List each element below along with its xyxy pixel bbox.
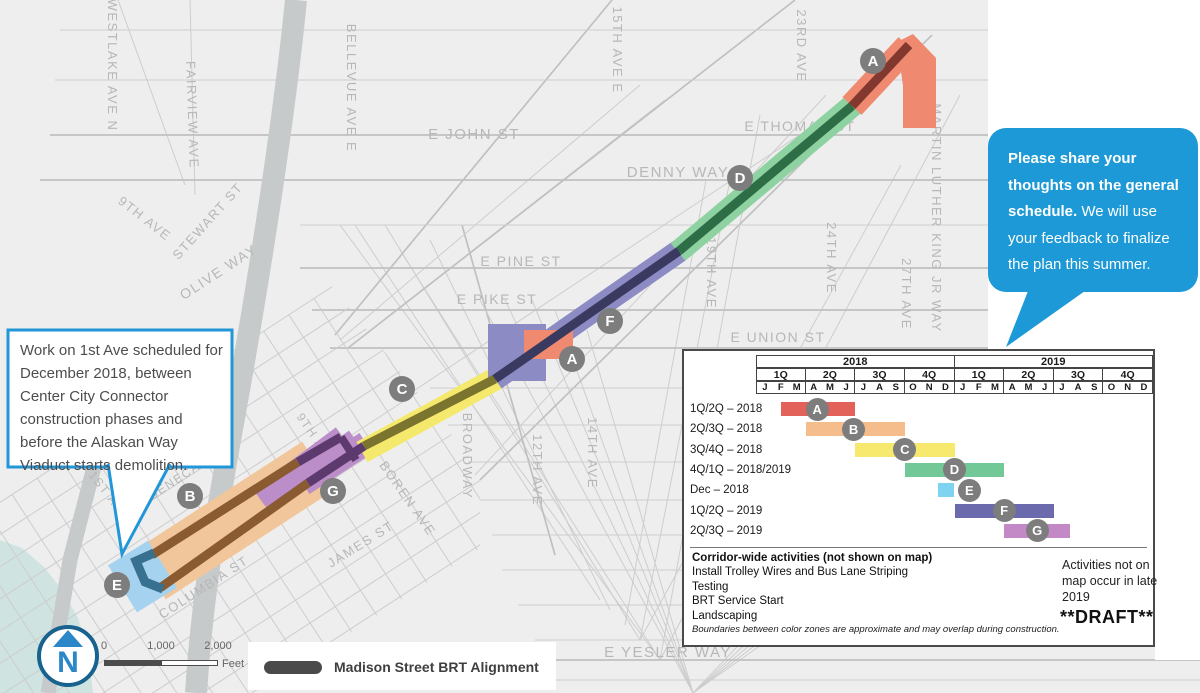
street-label: BROADWAY [460,413,475,499]
gantt-quarter-cell: 3Q [855,368,905,381]
gantt-year-cell: 2018 [756,355,955,368]
gantt-month-label: O [1103,382,1119,393]
street-label: MARTIN LUTHER KING JR WAY [929,103,944,332]
madison-brt-map-page: { "bubble": { "bold": "Please share your… [0,0,1200,693]
gantt-marker-b: B [842,418,865,441]
corridor-activity-item: Install Trolley Wires and Bus Lane Strip… [692,566,908,578]
gantt-month-cell: AMJ [1004,381,1054,394]
legend-box: Madison Street BRT Alignment [248,642,556,690]
gantt-month-label: A [871,382,887,393]
gantt-marker-a: A [806,398,829,421]
gantt-quarter-cell: 4Q [1103,368,1153,381]
street-label: 12TH AVE [530,434,545,506]
gantt-month-cell: JAS [855,381,905,394]
gantt-marker-e: E [958,479,981,502]
gantt-marker-d: D [943,458,966,481]
gantt-year-cell: 2019 [955,355,1154,368]
gantt-month-label: F [971,382,987,393]
street-label: E JOHN ST [428,126,520,143]
svg-text:B: B [185,488,196,505]
scale-bar: 0 1,000 2,000 Feet [100,640,270,680]
svg-text:A: A [567,351,578,368]
svg-text:F: F [605,313,614,330]
street-label: DENNY WAY [627,164,729,181]
gantt-month-label: N [1120,382,1136,393]
footnote: Boundaries between color zones are appro… [692,624,1060,635]
map-marker-a2: A [559,346,585,372]
street-label: 23RD AVE [794,9,809,82]
gantt-month-label: M [987,382,1003,393]
gantt-quarter-cell: 2Q [1004,368,1054,381]
gantt-marker-c: C [893,438,916,461]
street-label: 24TH AVE [824,222,839,294]
gantt-quarter-cell: 3Q [1054,368,1104,381]
gantt-row-label: Dec – 2018 [690,484,749,496]
street-label: 27TH AVE [899,258,914,330]
gantt-row-label: 2Q/3Q – 2019 [690,525,762,537]
scale-unit: Feet [222,658,244,670]
svg-text:G: G [327,483,339,500]
gantt-marker-g: G [1026,519,1049,542]
gantt-month-label: O [905,382,921,393]
map-marker-f: F [597,308,623,334]
panel-divider [690,547,1147,548]
draft-label: **DRAFT** [1060,607,1154,628]
gantt-quarter-cell: 2Q [806,368,856,381]
gantt-row-label: 1Q/2Q – 2018 [690,403,762,415]
speech-bubble-text: Please share your thoughts on the genera… [1008,146,1186,279]
gantt-quarter-cell: 1Q [955,368,1005,381]
scale-tick-1000: 1,000 [147,640,175,652]
gantt-row-label: 2Q/3Q – 2018 [690,423,762,435]
map-marker-a1: A [860,48,886,74]
gantt-marker-f: F [993,499,1016,522]
map-marker-e: E [104,572,130,598]
map-marker-c: C [389,376,415,402]
schedule-panel: Corridor-wide activities (not shown on m… [682,349,1155,647]
gantt-month-label: A [806,382,822,393]
corridor-activities-header: Corridor-wide activities (not shown on m… [692,552,932,564]
gantt-month-label: D [937,382,953,393]
street-label: 19TH AVE [704,237,719,309]
gantt-month-label: M [789,382,805,393]
street-label: E PIKE ST [457,291,537,307]
gantt-month-label: J [838,382,854,393]
gantt-quarter-cell: 4Q [905,368,955,381]
gantt-row-label: 4Q/1Q – 2018/2019 [690,464,791,476]
callout-text: Work on 1st Ave scheduled for December 2… [20,339,226,477]
svg-text:C: C [397,381,408,398]
gantt-month-cell: OND [1103,381,1153,394]
corridor-activity-item: Landscaping [692,610,757,622]
gantt-month-label: J [1037,382,1053,393]
side-note: Activities not on map occur in late 2019 [1062,557,1174,605]
street-label: E UNION ST [730,329,825,345]
gantt-month-cell: OND [905,381,955,394]
gantt-bar-e [938,483,955,497]
gantt-month-label: D [1136,382,1152,393]
corridor-activity-item: BRT Service Start [692,595,784,607]
gantt-month-label: S [888,382,904,393]
street-label: 15TH AVE E [610,6,625,93]
gantt-row-label: 1Q/2Q – 2019 [690,505,762,517]
north-arrow: N [33,621,103,691]
gantt-month-label: J [855,382,871,393]
street-label: 14TH AVE [585,417,600,489]
map-marker-g: G [320,478,346,504]
gantt-row-label: 3Q/4Q – 2018 [690,444,762,456]
legend-label: Madison Street BRT Alignment [334,659,539,675]
brt-alignment-swatch [264,661,322,674]
map-marker-b: B [177,483,203,509]
gantt-month-label: J [757,382,773,393]
street-label: BELLEVUE AVE E [344,24,359,152]
street-label: E PINE ST [480,253,561,269]
svg-text:D: D [735,170,746,187]
gantt-month-label: A [1004,382,1020,393]
gantt-month-label: S [1086,382,1102,393]
svg-text:E: E [112,577,122,594]
scale-segment-light [161,660,218,666]
corridor-activity-item: Testing [692,581,728,593]
scale-tick-2000: 2,000 [204,640,232,652]
scale-segment-dark [104,660,161,666]
map-marker-d: D [727,165,753,191]
gantt-month-label: J [955,382,971,393]
gantt-month-cell: JFM [756,381,806,394]
north-arrow-n: N [57,646,79,679]
street-label: WESTLAKE AVE N [105,0,120,131]
gantt-month-cell: JAS [1054,381,1104,394]
gantt-quarter-cell: 1Q [756,368,806,381]
gantt-month-label: J [1054,382,1070,393]
gantt-month-label: N [921,382,937,393]
gantt-month-label: M [1020,382,1036,393]
gantt-month-label: M [822,382,838,393]
gantt-month-label: A [1070,382,1086,393]
svg-text:A: A [868,53,879,70]
gantt-month-label: F [773,382,789,393]
gantt-month-cell: JFM [955,381,1005,394]
gantt-month-cell: AMJ [806,381,856,394]
